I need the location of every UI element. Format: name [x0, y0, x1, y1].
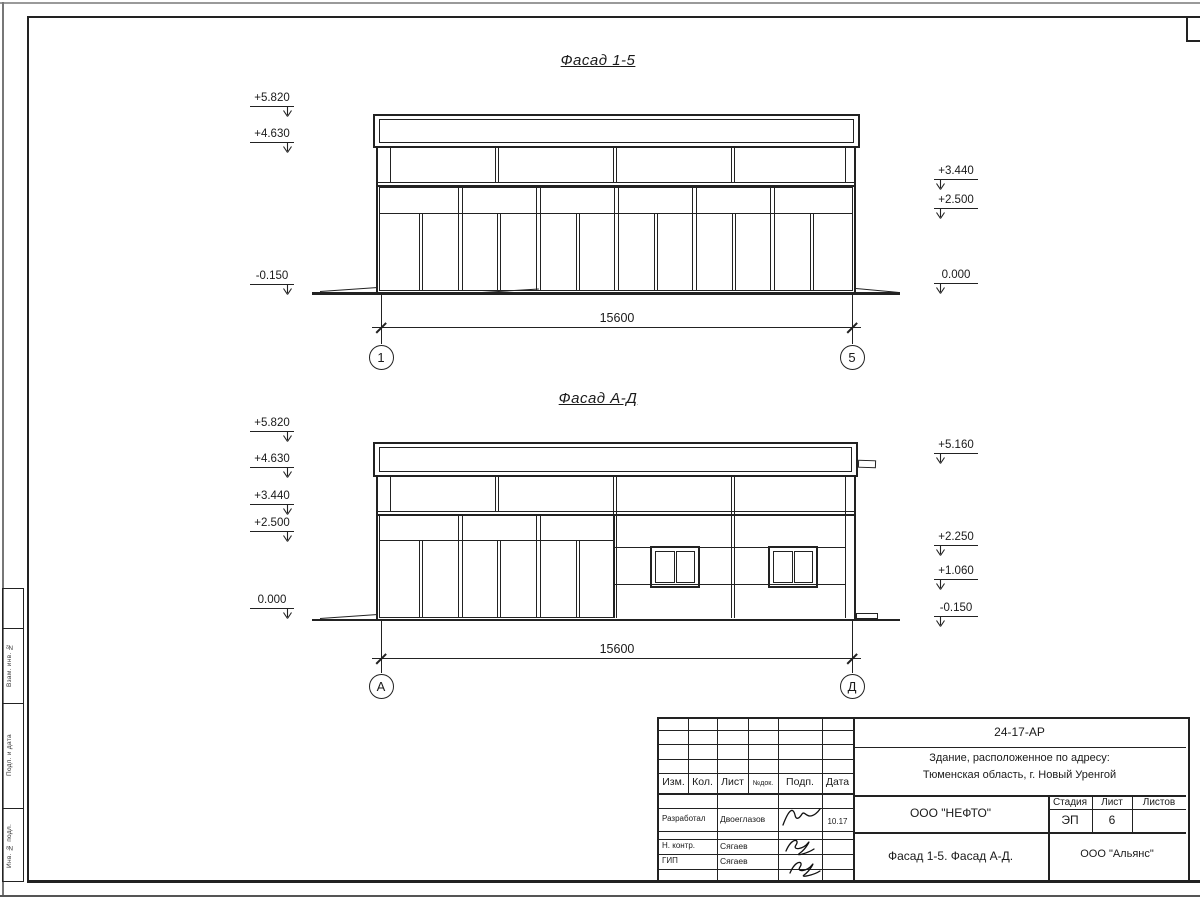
canopy-inner — [379, 119, 854, 143]
signature-date: 10.17 — [822, 817, 853, 826]
transom-divider — [536, 188, 541, 213]
revision-header: Изм. — [659, 776, 688, 788]
elevation-mark: +4.630 — [250, 453, 294, 468]
signature-role: ГИП — [662, 856, 678, 865]
scupper — [858, 460, 876, 469]
elevation-arrow-icon — [935, 179, 946, 191]
glazing-mullion — [497, 541, 501, 617]
elevation-mark: +4.630 — [250, 128, 294, 143]
facade-a-d-title: Фасад А-Д — [518, 390, 678, 407]
tb-line — [659, 730, 853, 731]
glazing-mullion — [419, 214, 423, 290]
signature-role: Н. контр. — [662, 841, 695, 850]
elevation-mark: +2.500 — [250, 517, 294, 532]
wall-edge — [376, 148, 378, 292]
elevation-arrow-icon — [282, 504, 293, 516]
band-line — [376, 511, 856, 512]
elevation-mark: +1.060 — [934, 565, 978, 580]
glazing-mullion — [614, 214, 619, 290]
elevation-mark: +5.160 — [934, 439, 978, 454]
band-line — [376, 182, 856, 183]
outer-border-top — [0, 2, 1200, 4]
extension-line — [381, 294, 382, 344]
axis-bubble: 1 — [369, 345, 394, 370]
project-address-line1: Здание, расположенное по адресу: — [853, 752, 1186, 764]
signature-name: Сягаев — [720, 841, 748, 851]
dimension-line — [372, 658, 861, 659]
elevation-mark: +2.500 — [934, 194, 978, 209]
axis-bubble: А — [369, 674, 394, 699]
extension-line — [381, 621, 382, 673]
transom-divider — [614, 188, 619, 213]
elevation-value: +4.630 — [254, 453, 290, 465]
elevation-value: +3.440 — [254, 490, 290, 502]
window-sash — [773, 551, 793, 583]
canopy-inner — [379, 447, 852, 472]
frame-top — [27, 16, 1200, 18]
revision-header: №док. — [748, 780, 778, 787]
stage-header: Стадия — [1048, 797, 1092, 808]
fascia-joint — [495, 477, 499, 512]
elevation-mark: -0.150 — [934, 602, 978, 617]
glazing-mullion — [732, 214, 736, 290]
fascia-joint — [495, 148, 499, 183]
pilaster-line — [845, 148, 846, 182]
elevation-arrow-icon — [935, 579, 946, 591]
contractor-name: ООО "НЕФТО" — [853, 806, 1048, 820]
elevation-value: +2.250 — [938, 531, 974, 543]
elevation-value: +5.160 — [938, 439, 974, 451]
axis-bubble: 5 — [840, 345, 865, 370]
elevation-arrow-icon — [282, 142, 293, 154]
tb-line — [1048, 809, 1186, 810]
stamp-divider — [3, 628, 23, 629]
dimension-value: 15600 — [562, 642, 672, 656]
elevation-arrow-icon — [282, 106, 293, 118]
sheet-title: Фасад 1-5. Фасад А-Д. — [853, 849, 1048, 863]
elevation-value: +5.820 — [254, 92, 290, 104]
corner-box-line — [1186, 40, 1200, 42]
wall-edge — [854, 477, 856, 619]
extension-line — [852, 621, 853, 673]
curb — [856, 613, 878, 619]
tb-line — [659, 793, 853, 795]
client-name: ООО "Альянс" — [1048, 848, 1186, 860]
elevation-arrow-icon — [935, 453, 946, 465]
title-block: Изм. Кол. Лист №док. Подп. Дата Разработ… — [657, 717, 1190, 883]
pilaster-line — [390, 477, 391, 512]
glazing-mullion — [497, 214, 501, 290]
tb-line — [659, 831, 853, 832]
revision-header: Лист — [717, 776, 748, 788]
elevation-value: 0.000 — [258, 594, 287, 606]
sheet-header: Лист — [1092, 797, 1132, 808]
transom-divider — [770, 188, 775, 213]
sheet-number: 6 — [1092, 813, 1132, 827]
elevation-arrow-icon — [935, 616, 946, 628]
elevation-value: +2.500 — [938, 194, 974, 206]
window-sash — [655, 551, 675, 583]
dimension-value: 15600 — [562, 311, 672, 325]
frame-left — [27, 16, 29, 882]
elevation-mark: +3.440 — [250, 490, 294, 505]
elevation-value: +4.630 — [254, 128, 290, 140]
outer-border-bottom — [0, 895, 1200, 897]
elevation-arrow-icon — [282, 531, 293, 543]
elevation-mark: 0.000 — [250, 594, 294, 609]
elevation-mark: +5.820 — [250, 417, 294, 432]
glazing-mullion — [576, 541, 580, 617]
elevation-value: -0.150 — [940, 602, 973, 614]
glazing-mullion — [576, 214, 580, 290]
elevation-value: -0.150 — [256, 270, 289, 282]
ground-line — [312, 292, 900, 295]
glazing-mullion — [536, 541, 541, 617]
glazing-mullion — [458, 214, 463, 290]
elevation-value: +5.820 — [254, 417, 290, 429]
stamp-label: Инв. № подл. — [6, 811, 13, 880]
doc-number: 24-17-АР — [853, 725, 1186, 739]
elevation-arrow-icon — [282, 431, 293, 443]
glazing-mullion — [770, 214, 775, 290]
elevation-mark: +5.820 — [250, 92, 294, 107]
glazing-mullion — [536, 214, 541, 290]
transom-divider — [458, 516, 463, 540]
glazing-mullion — [419, 541, 423, 617]
elevation-arrow-icon — [282, 284, 293, 296]
revision-header: Подп. — [778, 776, 822, 788]
signature-name: Двоеглазов — [720, 814, 765, 824]
revision-header: Кол. — [688, 776, 717, 788]
elevation-arrow-icon — [282, 608, 293, 620]
elevation-value: +3.440 — [938, 165, 974, 177]
corner-box-line — [1186, 17, 1188, 40]
tb-line — [853, 747, 1186, 748]
elevation-mark: 0.000 — [934, 269, 978, 284]
ground-line — [312, 619, 900, 622]
signature-role: Разработал — [662, 814, 706, 823]
revision-header: Дата — [822, 776, 853, 788]
pilaster-line — [390, 148, 391, 182]
elevation-arrow-icon — [282, 467, 293, 479]
project-address-line2: Тюменская область, г. Новый Уренгой — [853, 769, 1186, 781]
window-sash — [794, 551, 813, 583]
stamp-divider — [3, 703, 23, 704]
tb-line — [659, 744, 853, 745]
stamp-label: Подп. и дата — [6, 706, 13, 805]
transom-divider — [692, 188, 697, 213]
glazing-mullion — [692, 214, 697, 290]
transom-divider — [536, 516, 541, 540]
margin-stamp-column: Взам. инв. № Подп. и дата Инв. № подл. — [2, 588, 24, 882]
glazing-mullion — [458, 541, 463, 617]
tb-line — [659, 759, 853, 760]
elevation-arrow-icon — [935, 545, 946, 557]
signature — [778, 835, 824, 879]
transom-divider — [458, 188, 463, 213]
elevation-mark: +3.440 — [934, 165, 978, 180]
facade-1-5-title: Фасад 1-5 — [518, 52, 678, 69]
elevation-value: 0.000 — [942, 269, 971, 281]
glazing-mullion — [654, 214, 658, 290]
elevation-mark: +2.250 — [934, 531, 978, 546]
fascia-joint — [731, 148, 735, 183]
elevation-value: +2.500 — [254, 517, 290, 529]
stamp-label: Взам. инв. № — [6, 631, 13, 700]
window-sash — [676, 551, 695, 583]
signature — [780, 803, 822, 829]
dimension-line — [372, 327, 861, 328]
pilaster-line — [845, 477, 846, 618]
transom-row — [379, 515, 615, 541]
tb-line — [659, 773, 853, 774]
signature-name: Сягаев — [720, 856, 748, 866]
elevation-arrow-icon — [935, 208, 946, 220]
axis-bubble: Д — [840, 674, 865, 699]
tb-line — [659, 808, 853, 809]
tb-line — [853, 832, 1186, 834]
elevation-value: +1.060 — [938, 565, 974, 577]
fascia-joint — [613, 148, 617, 183]
extension-line — [852, 294, 853, 344]
elevation-mark: -0.150 — [250, 270, 294, 285]
wall-edge — [376, 477, 378, 619]
elevation-arrow-icon — [935, 283, 946, 295]
stage-value: ЭП — [1048, 813, 1092, 827]
stamp-divider — [3, 808, 23, 809]
sheets-header: Листов — [1132, 797, 1186, 808]
glazing-mullion — [810, 214, 814, 290]
wall-edge — [854, 148, 856, 292]
drawing-sheet: Взам. инв. № Подп. и дата Инв. № подл. Ф… — [0, 0, 1200, 900]
